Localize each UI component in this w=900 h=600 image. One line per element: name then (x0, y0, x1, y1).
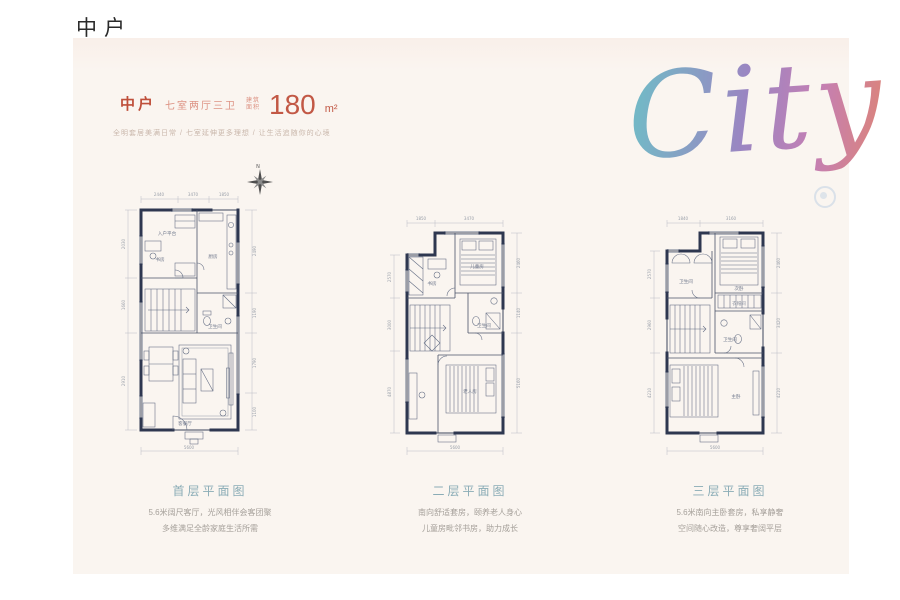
layout-label: 七室两厅三卫 (165, 97, 237, 118)
svg-text:2570: 2570 (387, 271, 392, 282)
area-label-top: 建筑 (246, 98, 260, 105)
tagline: 全明套居美满日常 / 七室延伸更多理想 / 让生活追随你的心境 (113, 128, 331, 138)
floorplan-first-floor: N 2440 3470 1850 2030 1660 2910 (115, 163, 305, 473)
caption-second-floor: 二层平面图 (380, 482, 560, 499)
svg-text:3470: 3470 (188, 192, 199, 197)
desc-first-line1: 5.6米阔尺客厅，光风相伴会客团聚 (100, 505, 320, 521)
svg-text:入户平台: 入户平台 (158, 230, 177, 237)
svg-text:5600: 5600 (184, 445, 195, 450)
svg-text:客餐厅: 客餐厅 (178, 420, 192, 427)
svg-text:2490: 2490 (252, 245, 257, 256)
svg-text:2030: 2030 (121, 238, 126, 249)
watermark-logo-icon (814, 186, 836, 208)
brand-script-city: City (622, 18, 900, 217)
plan-header: 中户 七室两厅三卫 建筑 面积 180 m² (120, 92, 338, 118)
svg-text:1140: 1140 (516, 307, 521, 318)
page-title: 中户 (76, 12, 132, 42)
svg-text:书房: 书房 (155, 256, 165, 263)
stairs (410, 305, 450, 351)
area-label: 建筑 面积 (246, 98, 260, 118)
stairs (670, 305, 710, 353)
svg-text:5160: 5160 (516, 377, 521, 388)
furniture (409, 239, 500, 419)
floorplan-third-floor: 1840 3160 2570 2960 4210 2460 3420 4210 … (640, 193, 820, 473)
svg-text:5600: 5600 (450, 445, 461, 450)
unit-label: 中户 (120, 93, 156, 118)
svg-text:书房: 书房 (427, 280, 437, 287)
svg-text:卫生间: 卫生间 (723, 336, 737, 343)
svg-text:1850: 1850 (219, 192, 230, 197)
svg-text:2440: 2440 (154, 192, 165, 197)
desc-second-line2: 儿童房毗邻书房，助力成长 (365, 521, 575, 537)
svg-text:1660: 1660 (121, 299, 126, 310)
desc-third-line2: 空间随心改造，尊享奢阔平层 (625, 521, 835, 537)
svg-text:2910: 2910 (121, 375, 126, 386)
svg-text:2460: 2460 (516, 257, 521, 268)
svg-text:2960: 2960 (647, 319, 652, 330)
area-value: 180 (269, 92, 316, 118)
desc-third-floor: 5.6米南向主卧套房，私享静奢 空间随心改造，尊享奢阔平层 (625, 505, 835, 537)
svg-text:3000: 3000 (387, 319, 392, 330)
svg-text:主卧: 主卧 (731, 393, 741, 400)
svg-text:卫生间: 卫生间 (679, 278, 693, 285)
caption-first-floor: 首层平面图 (115, 482, 305, 499)
svg-text:3470: 3470 (464, 216, 475, 221)
area-unit: m² (325, 103, 338, 118)
svg-text:3420: 3420 (776, 317, 781, 328)
compass-icon: N (247, 164, 273, 195)
caption-third-floor: 三层平面图 (640, 482, 820, 499)
stairs (145, 289, 195, 331)
svg-text:卫生间: 卫生间 (208, 323, 222, 330)
furniture (670, 237, 761, 417)
svg-text:衣帽间: 衣帽间 (732, 300, 746, 307)
svg-text:4870: 4870 (387, 386, 392, 397)
desc-second-line1: 南向舒适套房，颐养老人身心 (365, 505, 575, 521)
desc-first-line2: 多维满足全龄家庭生活所需 (100, 521, 320, 537)
desc-first-floor: 5.6米阔尺客厅，光风相伴会客团聚 多维满足全龄家庭生活所需 (100, 505, 320, 537)
svg-text:1190: 1190 (252, 307, 257, 318)
room-labels: 入户平台 书房 厨房 卫生间 客餐厅 (155, 230, 222, 427)
svg-text:次卧: 次卧 (734, 285, 744, 292)
svg-text:4210: 4210 (776, 387, 781, 398)
svg-text:2460: 2460 (776, 257, 781, 268)
svg-text:厨房: 厨房 (208, 253, 218, 260)
desc-third-line1: 5.6米南向主卧套房，私享静奢 (625, 505, 835, 521)
floorplan-second-floor: 1850 3470 2570 3000 4870 2460 1140 5160 … (380, 193, 560, 473)
svg-text:3160: 3160 (726, 216, 737, 221)
svg-text:1100: 1100 (252, 406, 257, 417)
desc-second-floor: 南向舒适套房，颐养老人身心 儿童房毗邻书房，助力成长 (365, 505, 575, 537)
svg-text:卫生间: 卫生间 (477, 322, 491, 329)
svg-text:2570: 2570 (647, 268, 652, 279)
plan-structure (140, 209, 240, 445)
svg-text:N: N (256, 164, 260, 170)
svg-text:1850: 1850 (416, 216, 427, 221)
floorplan-page: 中户 City 中户 七室两厅三卫 建筑 面积 180 m² 全明套居美满日常 … (0, 0, 900, 600)
area-label-bottom: 面积 (246, 105, 260, 112)
svg-text:1790: 1790 (252, 357, 257, 368)
room-labels: 书房 儿童房 卫生间 老人房 (427, 263, 491, 395)
svg-text:4210: 4210 (647, 387, 652, 398)
svg-text:5600: 5600 (710, 445, 721, 450)
svg-text:1840: 1840 (678, 216, 689, 221)
svg-text:儿童房: 儿童房 (470, 263, 484, 270)
svg-text:老人房: 老人房 (463, 388, 477, 395)
